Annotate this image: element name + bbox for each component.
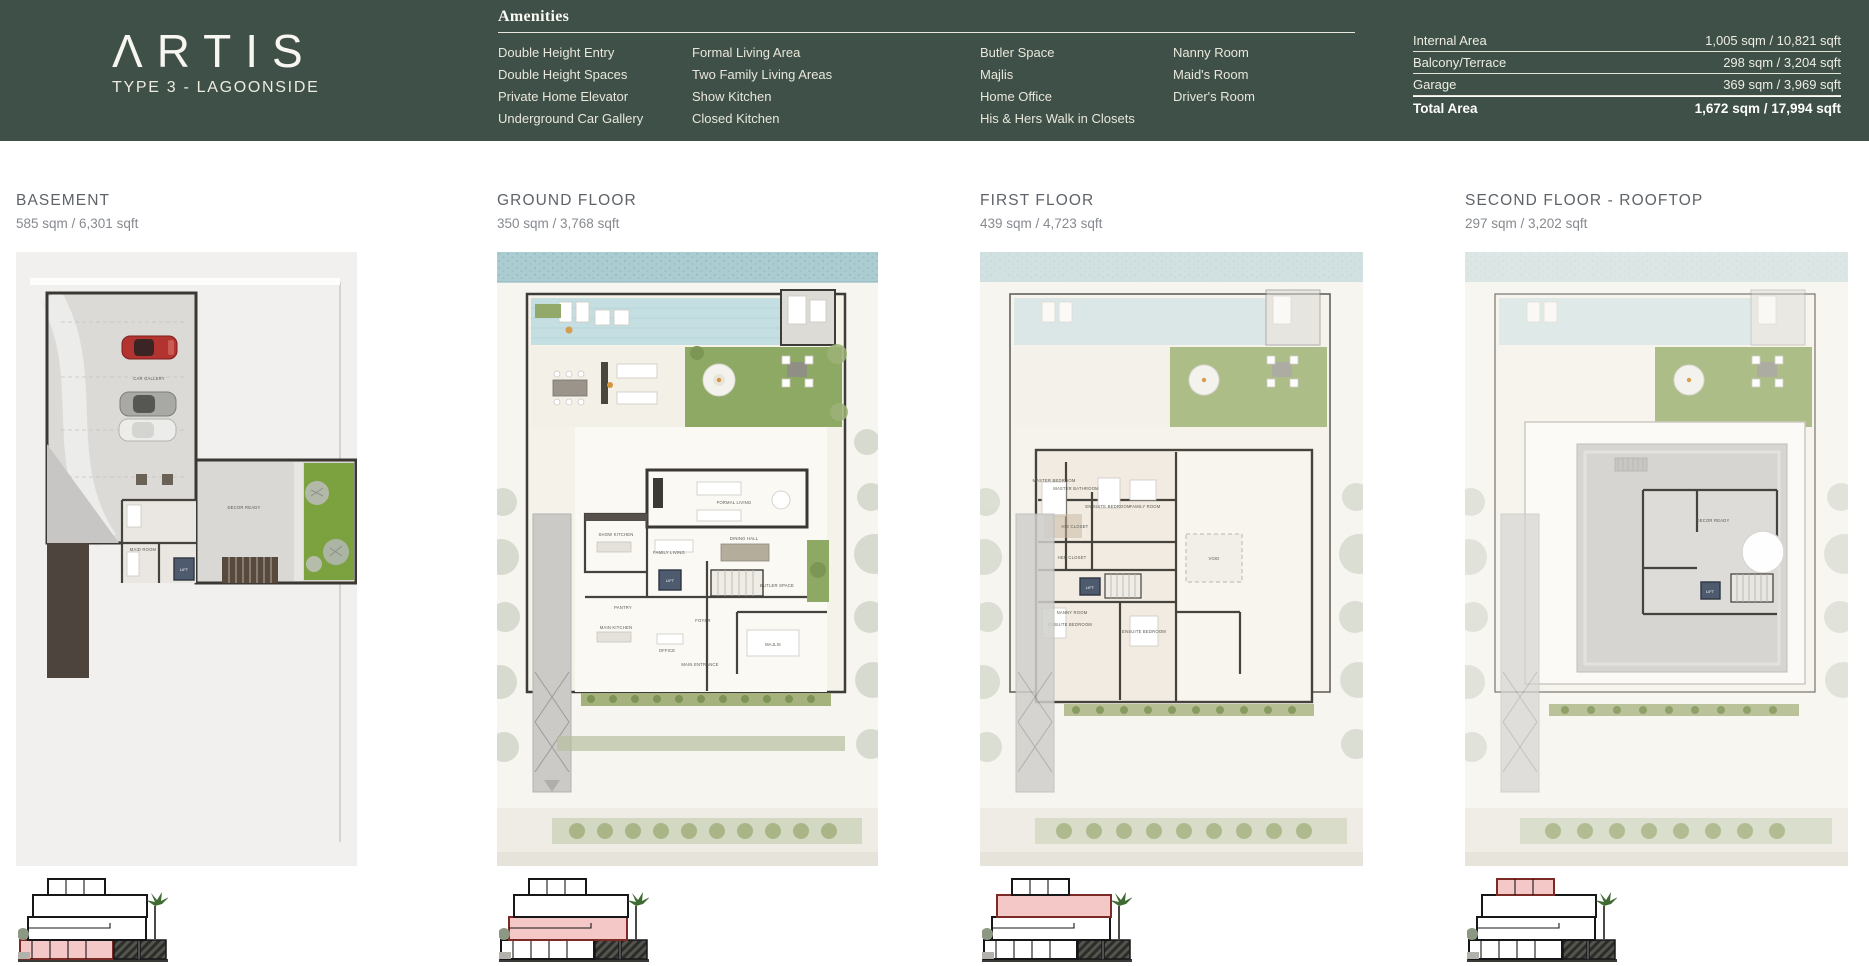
lagoon-water [497, 252, 878, 282]
amenity-item: Formal Living Area [692, 42, 832, 64]
room-label: DECOR READY [228, 505, 261, 510]
terrace [531, 347, 685, 427]
table-row: Garage 369 sqm / 3,969 sqft [1413, 74, 1841, 96]
lawn [685, 344, 848, 427]
amenity-item: His & Hers Walk in Closets [980, 108, 1135, 130]
amenity-item: Driver's Room [1173, 86, 1255, 108]
header-bar: ΛRTIS TYPE 3 - LAGOONSIDE Amenities Doub… [0, 0, 1869, 141]
total-area-value: 1,672 sqm / 17,994 sqft [1695, 101, 1841, 116]
basement-elevation-diagram [18, 876, 168, 966]
amenity-item: Nanny Room [1173, 42, 1255, 64]
silver-car [120, 392, 176, 416]
unit-type-subtitle: TYPE 3 - LAGOONSIDE [112, 79, 319, 97]
amenity-item: Maid's Room [1173, 64, 1255, 86]
hedge-rows [1549, 704, 1799, 716]
area-label: Internal Area [1413, 33, 1487, 48]
room-label: LIFT [180, 567, 189, 572]
amenities-column-2: Formal Living Area Two Family Living Are… [692, 42, 832, 130]
amenity-item: Home Office [980, 86, 1135, 108]
room-label: MAIN ENTRANCE [681, 662, 718, 667]
rock [18, 952, 30, 959]
total-area-label: Total Area [1413, 101, 1478, 116]
red-car [122, 336, 177, 359]
driveway [1501, 514, 1539, 792]
palm-tree [146, 892, 168, 906]
rock [499, 952, 511, 959]
utility-rooms: MAID ROOM LIFT [122, 500, 196, 583]
second-floor-plan: DECOR READY LIFT [1465, 252, 1848, 871]
pavilion [781, 290, 835, 345]
amenities-divider [498, 32, 1355, 33]
floor-title: FIRST FLOOR [980, 192, 1363, 210]
brochure-page: ΛRTIS TYPE 3 - LAGOONSIDE Amenities Doub… [0, 0, 1869, 966]
room-label: CAR GALLERY [133, 376, 164, 381]
room-label: MASTER BATHROOM [1053, 486, 1099, 491]
floor-title: GROUND FLOOR [497, 192, 878, 210]
brand-block: ΛRTIS TYPE 3 - LAGOONSIDE [112, 26, 319, 97]
area-label: Balcony/Terrace [1413, 55, 1506, 70]
lawn [1170, 347, 1327, 427]
floor-area: 585 sqm / 6,301 sqft [16, 216, 357, 231]
amenity-item: Show Kitchen [692, 86, 832, 108]
table-row: Internal Area 1,005 sqm / 10,821 sqft [1413, 30, 1841, 52]
room-label: NANNY ROOM [1057, 610, 1088, 615]
stairs [1731, 574, 1773, 602]
stairs [1105, 574, 1141, 598]
lagoon-water [980, 252, 1363, 282]
pool [531, 298, 815, 345]
room-label: BUTLER SPACE [760, 583, 794, 588]
room-label: DINING HALL [730, 536, 759, 541]
room-label: ENSUITE BEDROOM [1048, 622, 1092, 627]
palm-tree [1595, 892, 1617, 906]
amenities-section: Amenities Double Height Entry Double Hei… [498, 8, 1358, 33]
room-label: LIFT [1086, 585, 1095, 590]
skylight [1742, 531, 1784, 573]
house-interior: FORMAL LIVING DINING HALL SHOW KITCHEN F… [575, 427, 827, 692]
room-label: HIS CLOSET [1062, 524, 1089, 529]
amenity-item: Double Height Spaces [498, 64, 643, 86]
stairs [711, 570, 763, 596]
amenity-item: Closed Kitchen [692, 108, 832, 130]
room-label: MAID ROOM [130, 547, 157, 552]
floor-area: 439 sqm / 4,723 sqft [980, 216, 1363, 231]
area-value: 298 sqm / 3,204 sqft [1723, 55, 1841, 70]
amenities-title: Amenities [498, 8, 1358, 26]
room-label: ENSUITE BEDROOM [1122, 629, 1166, 634]
area-value: 1,005 sqm / 10,821 sqft [1705, 33, 1841, 48]
lagoon-water [1465, 252, 1848, 282]
room-label: LIFT [666, 578, 675, 583]
table-row: Balcony/Terrace 298 sqm / 3,204 sqft [1413, 52, 1841, 74]
amenity-item: Majlis [980, 64, 1135, 86]
hedge-rows [1064, 704, 1314, 716]
artis-logo: ΛRTIS [112, 26, 319, 76]
amenities-column-3: Butler Space Majlis Home Office His & He… [980, 42, 1135, 130]
stairs [222, 557, 278, 583]
room-label: PANTRY [614, 605, 632, 610]
room-label: VOID [1208, 556, 1219, 561]
second-floor-section: SECOND FLOOR - ROOFTOP 297 sqm / 3,202 s… [1465, 192, 1848, 966]
floor-area: 297 sqm / 3,202 sqft [1465, 216, 1848, 231]
room-label: OFFICE [659, 648, 676, 653]
street-trees [497, 808, 878, 866]
palm-tree [1110, 892, 1132, 906]
area-summary-table: Internal Area 1,005 sqm / 10,821 sqft Ba… [1413, 30, 1841, 120]
amenity-item: Butler Space [980, 42, 1135, 64]
first-floor-elevation-diagram [982, 876, 1132, 966]
room-label: EN SUITE BEDROOM [1085, 504, 1131, 509]
floor-title: BASEMENT [16, 192, 357, 210]
decor-ready-room: DECOR READY LIFT [1643, 490, 1784, 614]
first-floor-section: FIRST FLOOR 439 sqm / 4,723 sqft [980, 192, 1363, 966]
ground-floor-elevation-diagram [499, 876, 649, 966]
table-row-total: Total Area 1,672 sqm / 17,994 sqft [1413, 96, 1841, 120]
area-label: Garage [1413, 77, 1456, 92]
amenities-column-4: Nanny Room Maid's Room Driver's Room [1173, 42, 1255, 108]
amenity-item: Private Home Elevator [498, 86, 643, 108]
room-label: HER CLOSET [1058, 555, 1087, 560]
amenity-item: Two Family Living Areas [692, 64, 832, 86]
room-label: SHOW KITCHEN [599, 532, 634, 537]
palm-tree [627, 892, 649, 906]
bedroom-wing: MASTER BEDROOM MASTER BATHROOM EN SUITE … [1032, 450, 1312, 702]
pool [1499, 290, 1805, 345]
amenities-column-1: Double Height Entry Double Height Spaces… [498, 42, 643, 130]
first-floor-plan: MASTER BEDROOM MASTER BATHROOM EN SUITE … [980, 252, 1363, 871]
amenity-item: Underground Car Gallery [498, 108, 643, 130]
lawn [1655, 347, 1812, 427]
ground-floor-section: GROUND FLOOR 350 sqm / 3,768 sqft [497, 192, 878, 966]
white-car [119, 419, 176, 441]
floor-area: 350 sqm / 3,768 sqft [497, 216, 878, 231]
room-label: DECOR READY [1697, 518, 1730, 523]
terrace [1014, 347, 1170, 427]
room-label: MAIN KITCHEN [600, 625, 632, 630]
retaining-wall [47, 543, 89, 678]
basement-garden [304, 463, 354, 580]
rock [1467, 952, 1479, 959]
basement-section: BASEMENT 585 sqm / 6,301 sqft [16, 192, 357, 966]
area-value: 369 sqm / 3,969 sqft [1723, 77, 1841, 92]
side-garden [807, 540, 829, 602]
street-trees [1465, 808, 1848, 866]
room-label: FAMILY ROOM [1130, 504, 1161, 509]
room-label: FAMILY LIVING [653, 550, 685, 555]
rock [982, 952, 994, 959]
floor-title: SECOND FLOOR - ROOFTOP [1465, 192, 1848, 210]
driveway [1016, 514, 1054, 792]
room-label: LIFT [1706, 589, 1715, 594]
room-label: MAJLIS [765, 642, 781, 647]
room-label: MASTER BEDROOM [1032, 478, 1075, 483]
ground-floor-plan: FORMAL LIVING DINING HALL SHOW KITCHEN F… [497, 252, 878, 871]
room-label: FOYER [695, 618, 710, 623]
basement-floor-plan: CAR GALLERY DECOR READY [16, 252, 357, 871]
room-label: FORMAL LIVING [717, 500, 752, 505]
pool [1014, 290, 1320, 345]
amenity-item: Double Height Entry [498, 42, 643, 64]
second-floor-elevation-diagram [1467, 876, 1617, 966]
street-trees [980, 808, 1363, 866]
